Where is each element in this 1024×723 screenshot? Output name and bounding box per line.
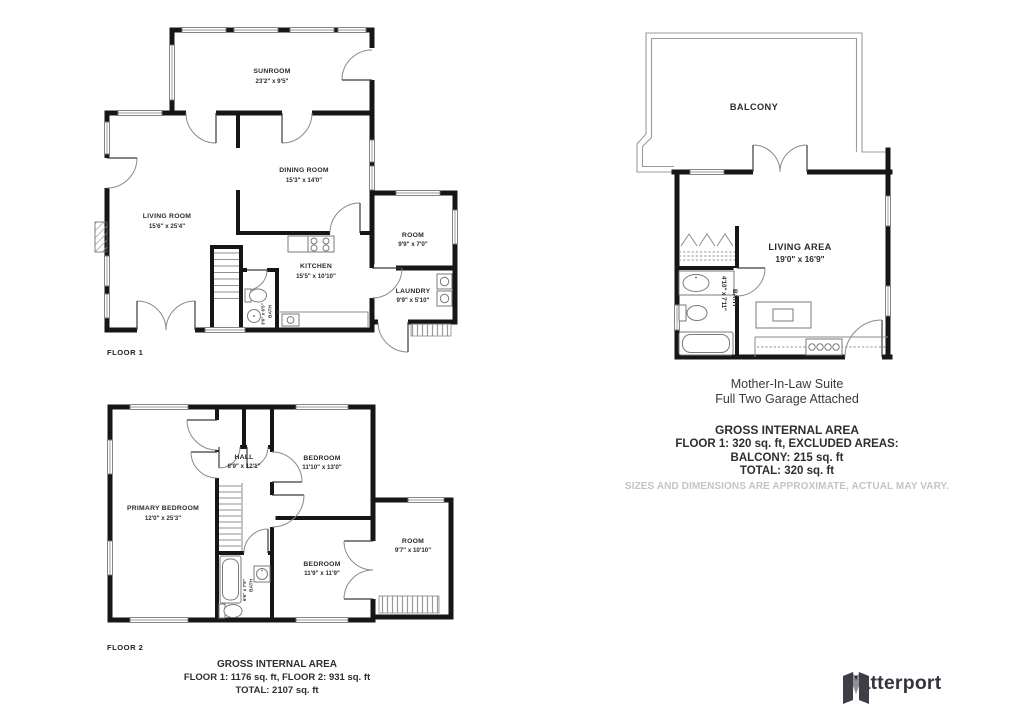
suite-fixtures: [679, 234, 888, 357]
room-label-sunroom: SUNROOM: [253, 68, 290, 75]
room-dims-bedroom-bottom: 11'9" x 11'9": [304, 570, 340, 577]
floor1-label: FLOOR 1: [107, 348, 144, 357]
suite-plan: BALCONY LIVING AREA 19'0" x 16'9" 4'10" …: [637, 33, 891, 361]
room-dims-room1: 9'9" x 7'0": [398, 241, 428, 248]
kitchenette: [755, 302, 888, 357]
room-dims-hall: 6'9" x 12'1": [228, 463, 261, 470]
room-dims-primary: 12'0" x 25'3": [145, 515, 181, 522]
room-dims-living-area: 19'0" x 16'9": [775, 254, 824, 264]
kitchen-fixtures: [278, 236, 368, 328]
room-label-living-area: LIVING AREA: [768, 242, 831, 252]
suite-area-heading: GROSS INTERNAL AREA: [620, 424, 954, 438]
exterior-deck-steps: [379, 596, 439, 613]
staircase: [214, 253, 239, 299]
room-label-bath2: BATH: [249, 578, 255, 592]
suite-caption: Mother-In-Law Suite Full Two Garage Atta…: [620, 377, 954, 406]
suite-area-summary: GROSS INTERNAL AREA FLOOR 1: 320 sq. ft,…: [620, 424, 954, 494]
dimensions-disclaimer: SIZES AND DIMENSIONS ARE APPROXIMATE, AC…: [620, 480, 954, 494]
room-label-hall: HALL: [234, 454, 253, 461]
suite-title: Mother-In-Law Suite: [620, 377, 954, 392]
house-area-heading: GROSS INTERNAL AREA: [132, 658, 422, 671]
house-area-line1: FLOOR 1: 1176 sq. ft, FLOOR 2: 931 sq. f…: [132, 671, 422, 684]
room-dims-laundry: 9'9" x 5'10": [397, 297, 430, 304]
floor2-plan: PRIMARY BEDROOM 12'0" x 25'3" HALL 6'9" …: [107, 405, 451, 653]
floor2-windows: [108, 405, 445, 623]
matterport-logo-icon: [843, 672, 869, 704]
floorplan-page: SUNROOM 23'2" x 9'5" DINING ROOM 15'3" x…: [0, 0, 1024, 723]
room-dims-bath1: 3'6" x 6'5": [261, 303, 266, 325]
fireplace: [95, 222, 107, 252]
room-dims-living: 15'6" x 25'4": [149, 223, 185, 230]
room-dims-sunroom: 23'2" x 9'5": [256, 78, 289, 85]
room-dims-bedroom-top: 11'10" x 13'0": [302, 464, 342, 471]
room-label-dining: DINING ROOM: [279, 167, 329, 174]
floor1-doors: [107, 50, 408, 352]
floor2-walls: [110, 407, 451, 620]
suite-area-line1: FLOOR 1: 320 sq. ft, EXCLUDED AREAS:: [620, 438, 954, 452]
room-label-primary: PRIMARY BEDROOM: [127, 505, 199, 512]
room-label-room2: ROOM: [402, 538, 424, 545]
room-dims-bath2: 6'6" x 7'9": [242, 579, 247, 601]
room-label-balcony: BALCONY: [730, 102, 778, 112]
room-label-laundry: LAUNDRY: [396, 288, 431, 295]
room-label-suite-bath: BATH: [731, 289, 738, 307]
room-dims-suite-bath: 4'10" x 7'11": [720, 276, 726, 311]
room-dims-dining: 15'3" x 14'0": [286, 177, 322, 184]
suite-door-gaps: [734, 169, 883, 361]
room-dims-room2: 9'7" x 10'10": [395, 547, 431, 554]
room-label-room1: ROOM: [402, 232, 424, 239]
floor2-label: FLOOR 2: [107, 643, 143, 652]
room-label-bath1: BATH: [268, 304, 274, 318]
house-area-line2: TOTAL: 2107 sq. ft: [132, 684, 422, 697]
matterport-branding: Matterport: [843, 672, 941, 695]
room-label-living: LIVING ROOM: [143, 213, 192, 220]
room-label-bedroom-top: BEDROOM: [303, 455, 340, 462]
room-label-kitchen: KITCHEN: [300, 263, 332, 270]
house-area-summary: GROSS INTERNAL AREA FLOOR 1: 1176 sq. ft…: [132, 658, 422, 697]
floor1-plan: SUNROOM 23'2" x 9'5" DINING ROOM 15'3" x…: [95, 28, 458, 358]
room-label-bedroom-bottom: BEDROOM: [303, 561, 340, 568]
exterior-steps: [411, 324, 451, 336]
suite-area-line3: TOTAL: 320 sq. ft: [620, 465, 954, 479]
staircase-floor2: [219, 483, 242, 551]
laundry-appliances: [411, 274, 452, 336]
closet: [679, 234, 735, 260]
floor1-walls: [107, 30, 455, 330]
room-dims-kitchen: 15'5" x 10'10": [296, 273, 336, 280]
suite-subtitle: Full Two Garage Attached: [620, 392, 954, 407]
suite-area-line2: BALCONY: 215 sq. ft: [620, 452, 954, 466]
floorplan-drawing: SUNROOM 23'2" x 9'5" DINING ROOM 15'3" x…: [0, 0, 1024, 723]
